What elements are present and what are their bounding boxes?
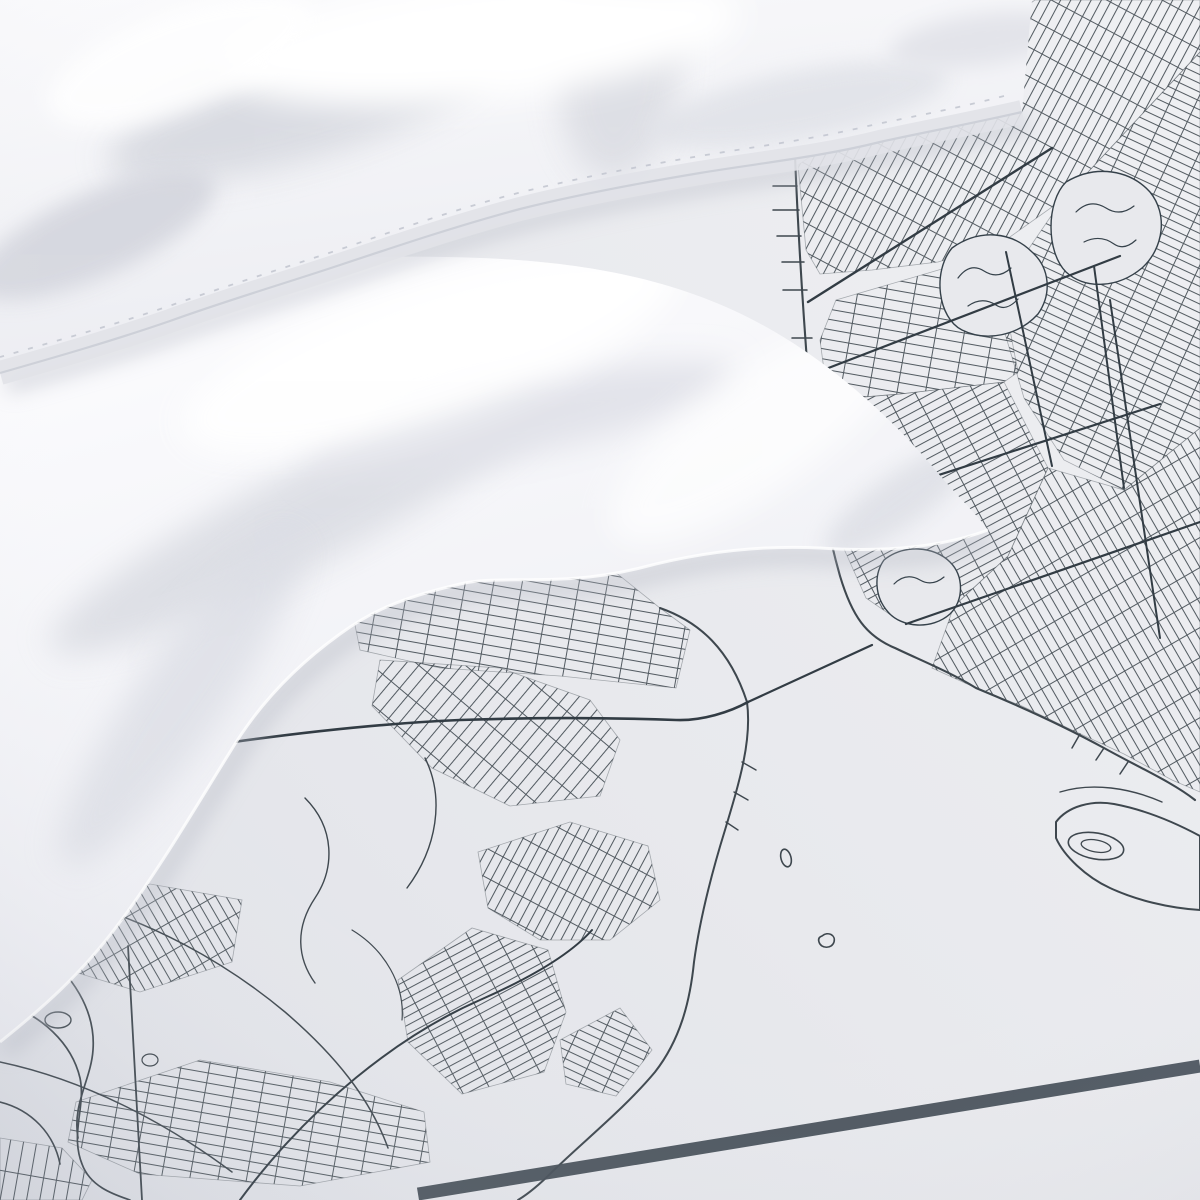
- bedding-product-photo: [0, 0, 1200, 1200]
- photo-canvas: [0, 0, 1200, 1200]
- photo-vignette: [0, 0, 1200, 1200]
